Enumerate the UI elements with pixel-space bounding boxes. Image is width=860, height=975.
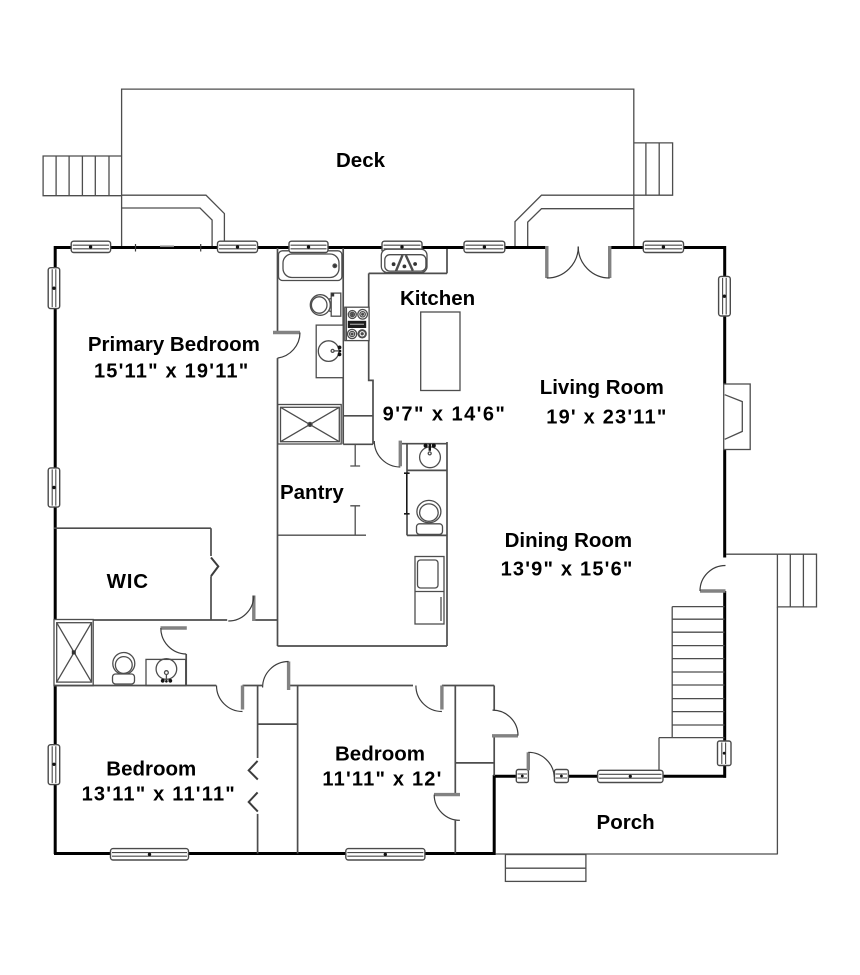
svg-text:Living Room: Living Room bbox=[540, 376, 664, 399]
svg-text:Dining Room: Dining Room bbox=[505, 529, 633, 552]
svg-text:WIC: WIC bbox=[107, 570, 149, 593]
svg-text:Kitchen: Kitchen bbox=[400, 287, 475, 310]
svg-text:13'9" x 15'6": 13'9" x 15'6" bbox=[501, 559, 634, 581]
svg-text:19' x 23'11": 19' x 23'11" bbox=[546, 406, 667, 428]
svg-text:15'11" x 19'11": 15'11" x 19'11" bbox=[94, 361, 250, 383]
svg-text:11'11" x 12': 11'11" x 12' bbox=[322, 769, 442, 791]
svg-text:Primary Bedroom: Primary Bedroom bbox=[88, 333, 260, 356]
svg-text:Deck: Deck bbox=[336, 149, 386, 172]
svg-text:Pantry: Pantry bbox=[280, 481, 344, 504]
svg-text:Bedroom: Bedroom bbox=[106, 758, 196, 781]
svg-text:Bedroom: Bedroom bbox=[335, 743, 425, 766]
svg-text:Porch: Porch bbox=[597, 811, 655, 834]
svg-text:13'11" x 11'11": 13'11" x 11'11" bbox=[82, 784, 236, 806]
svg-text:9'7" x 14'6": 9'7" x 14'6" bbox=[383, 404, 507, 426]
